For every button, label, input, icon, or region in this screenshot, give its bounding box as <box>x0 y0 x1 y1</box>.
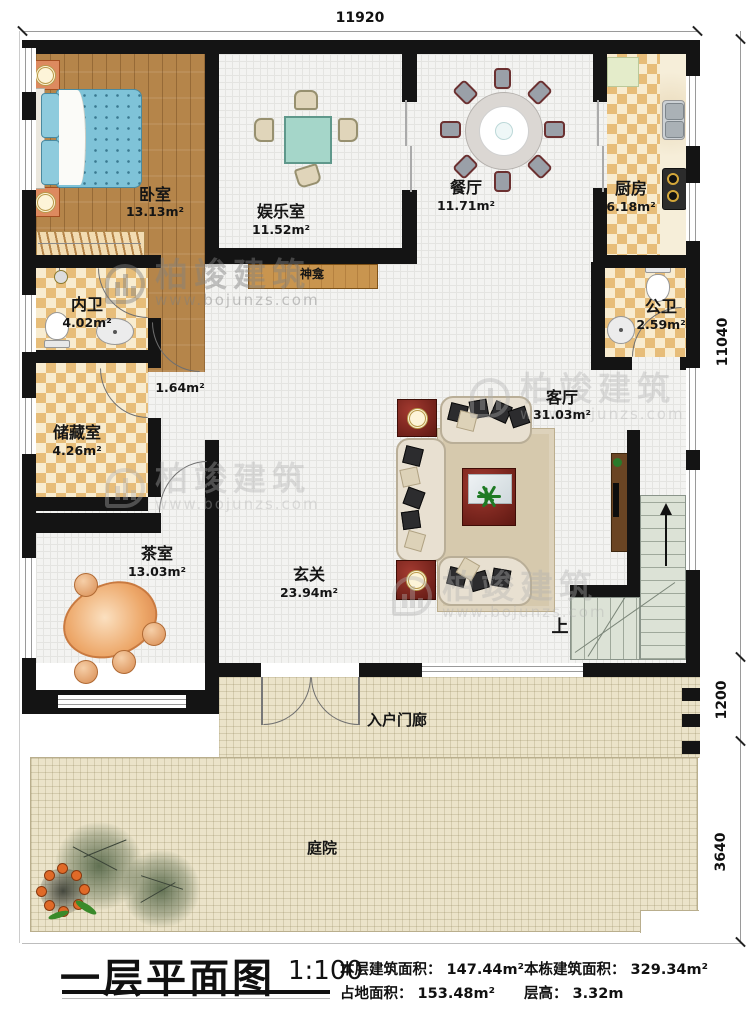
lamp-icon <box>407 408 428 429</box>
chair <box>294 90 318 110</box>
tea-stool <box>74 573 98 597</box>
tv-screen <box>613 483 619 517</box>
sofa-pillow <box>491 568 512 589</box>
sofa-pillow <box>401 510 421 530</box>
dim-top-width: 11920 <box>300 10 420 26</box>
berry-icon <box>36 886 47 897</box>
berry-icon <box>79 884 90 895</box>
title-rule-thin <box>62 998 330 999</box>
shower-head <box>54 270 68 284</box>
room-area-living: 31.03m² <box>527 408 597 422</box>
room-label-tea: 茶室 <box>122 545 192 563</box>
wall <box>148 363 161 368</box>
floor-plan-canvas: 11920 11040 1200 3640 <box>0 0 750 1010</box>
title-rule-thick <box>62 990 330 994</box>
wall <box>205 40 219 262</box>
room-label-public-bath: 公卫 <box>626 298 696 316</box>
wall <box>593 40 607 102</box>
sliding-door-dining <box>410 146 412 192</box>
window <box>22 48 36 92</box>
room-area-hallway: 1.64m² <box>145 381 215 395</box>
staircase-right-flight <box>640 495 686 660</box>
dim-line-bottom <box>22 943 741 944</box>
room-area-public-bath: 2.59m² <box>626 318 696 332</box>
door-post <box>359 663 365 677</box>
chair <box>338 118 358 142</box>
wall <box>402 40 417 102</box>
bed-pillow <box>41 140 60 185</box>
room-area-storage: 4.26m² <box>42 444 112 458</box>
sink-drain <box>619 328 623 332</box>
window <box>22 120 36 190</box>
wall <box>591 357 632 370</box>
wall <box>591 262 605 357</box>
room-label-bedroom: 卧室 <box>120 186 190 204</box>
room-label-storage: 储藏室 <box>34 424 120 442</box>
chair <box>254 118 274 142</box>
wall <box>22 513 161 533</box>
dining-chair <box>440 121 461 138</box>
room-label-inner-bath: 内卫 <box>52 296 122 314</box>
door-post <box>255 663 261 677</box>
kitchen-sink-basin <box>665 121 684 138</box>
stat-floor-height: 层高： 3.32m <box>524 982 623 1003</box>
room-label-dining: 餐厅 <box>431 179 501 197</box>
lamp-icon <box>35 192 56 213</box>
sofa-pillow <box>399 466 420 487</box>
wall <box>570 585 627 597</box>
dim-line-right <box>740 31 741 943</box>
room-area-entertainment: 11.52m² <box>246 223 316 237</box>
wall <box>148 418 161 497</box>
room-area-inner-bath: 4.02m² <box>52 316 122 330</box>
room-label-entertainment: 娱乐室 <box>238 203 324 221</box>
courtyard-label: 庭院 <box>282 840 362 857</box>
window <box>22 295 36 352</box>
stairs-up-label: 上 <box>540 618 580 637</box>
wall <box>205 248 417 264</box>
window <box>58 695 186 708</box>
wall <box>627 430 640 597</box>
wardrobe-rod <box>38 243 141 244</box>
plant-icon <box>613 458 622 467</box>
stairs-up-arrow-head <box>660 503 672 515</box>
dim-right-middle: 1200 <box>714 670 730 730</box>
tea-stool <box>142 622 166 646</box>
room-area-dining: 11.71m² <box>431 199 501 213</box>
wall <box>22 350 148 363</box>
room-area-bedroom: 13.13m² <box>120 205 190 219</box>
dim-right-upper: 11040 <box>715 312 731 372</box>
shrine-label: 神龛 <box>280 268 344 281</box>
stat-footprint: 占地面积： 153.48m² <box>340 982 495 1003</box>
tea-stool <box>112 650 136 674</box>
courtyard-notch <box>640 910 699 933</box>
wall <box>593 255 700 268</box>
wall <box>22 255 148 268</box>
sliding-door-kitchen <box>597 100 599 146</box>
window <box>422 665 583 675</box>
room-area-tea: 13.03m² <box>122 565 192 579</box>
wall <box>207 663 260 677</box>
wall <box>205 440 219 690</box>
window <box>686 183 700 241</box>
berry-icon <box>71 870 82 881</box>
window <box>686 368 700 450</box>
stairs-up-arrow-shaft <box>665 514 667 566</box>
room-area-kitchen: 6.18m² <box>596 200 666 214</box>
kitchen-counter <box>660 54 686 255</box>
stove-burner <box>667 190 679 202</box>
bed-blanket-fold <box>59 90 86 185</box>
berry-icon <box>44 870 55 881</box>
lamp-icon <box>406 570 427 591</box>
sliding-door-dining <box>405 100 407 146</box>
window <box>686 470 700 570</box>
room-label-foyer: 玄关 <box>274 566 344 584</box>
berry-icon <box>44 900 55 911</box>
wall <box>583 663 700 677</box>
kitchen-mat <box>607 57 639 87</box>
window <box>22 558 36 658</box>
plant-icon <box>485 488 488 506</box>
game-table <box>284 116 332 164</box>
stat-floor-area: 本层建筑面积： 147.44m² <box>340 958 524 979</box>
toilet-tank <box>44 340 70 348</box>
wall <box>360 663 422 677</box>
dining-chair <box>544 121 565 138</box>
wall <box>22 497 148 511</box>
window <box>686 76 700 146</box>
kitchen-sink-basin <box>665 103 684 120</box>
tea-stool <box>74 660 98 684</box>
dining-table-center <box>495 122 513 140</box>
room-label-living: 客厅 <box>527 389 597 407</box>
wall <box>402 190 417 262</box>
dim-line-top <box>22 31 698 32</box>
stat-building-area: 本栋建筑面积： 329.34m² <box>524 958 708 979</box>
dim-right-lower: 3640 <box>713 822 729 882</box>
room-area-foyer: 23.94m² <box>274 586 344 600</box>
dining-chair <box>494 68 511 89</box>
porch-pier <box>682 714 700 727</box>
bed-pillow <box>41 93 60 138</box>
dim-line-left <box>19 31 20 943</box>
porch-courtyard-line <box>219 757 699 758</box>
stove-burner <box>667 173 679 185</box>
berry-icon <box>57 863 68 874</box>
room-label-kitchen: 厨房 <box>596 180 666 198</box>
wall <box>148 255 161 268</box>
sink-drain <box>113 330 117 334</box>
lamp-icon <box>35 65 56 86</box>
porch-pier <box>682 688 700 701</box>
plan-title: 一层平面图 <box>60 946 275 1004</box>
porch-label: 入户门廊 <box>337 712 457 729</box>
porch-pier <box>682 741 700 754</box>
